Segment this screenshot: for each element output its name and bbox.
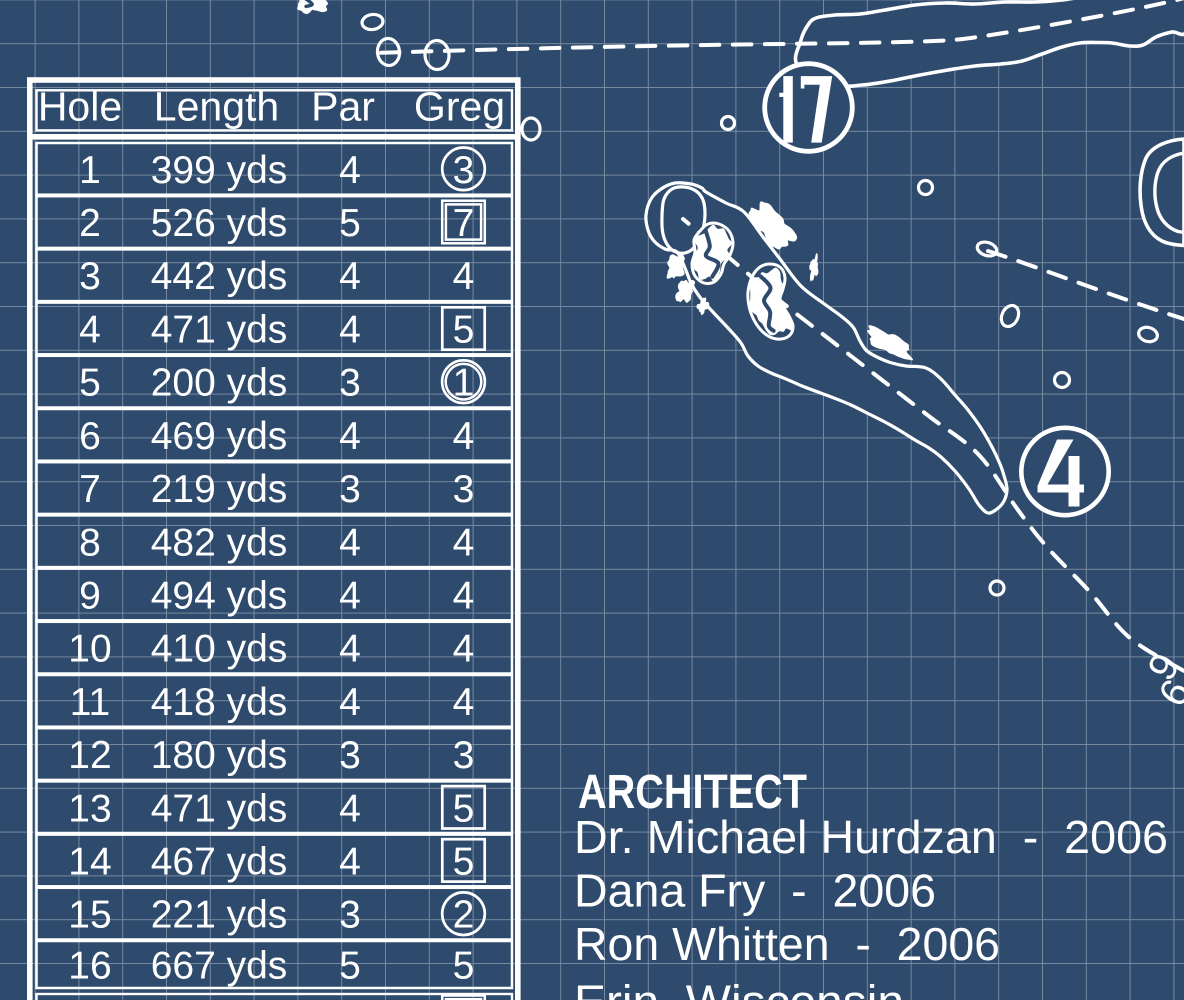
svg-text:5: 5: [453, 309, 475, 352]
svg-text:Dana Fry - 2006: Dana Fry - 2006: [574, 865, 936, 917]
svg-text:4: 4: [453, 255, 475, 298]
svg-text:3: 3: [79, 255, 101, 298]
svg-text:3: 3: [453, 149, 475, 192]
svg-text:3: 3: [339, 734, 361, 777]
svg-text:Greg: Greg: [414, 84, 505, 130]
svg-text:4: 4: [339, 787, 361, 830]
svg-text:410 yds: 410 yds: [151, 628, 288, 671]
svg-text:3: 3: [339, 362, 361, 405]
svg-text:467 yds: 467 yds: [151, 841, 288, 884]
svg-text:4: 4: [453, 628, 475, 671]
svg-text:1: 1: [79, 149, 101, 192]
svg-text:2: 2: [79, 202, 101, 245]
svg-text:2: 2: [453, 894, 475, 937]
svg-text:4: 4: [339, 681, 361, 724]
svg-text:4: 4: [339, 841, 361, 884]
svg-text:Hole: Hole: [38, 84, 122, 130]
svg-text:12: 12: [68, 734, 111, 777]
svg-text:15: 15: [68, 894, 111, 937]
svg-text:Dr. Michael Hurdzan - 2006: Dr. Michael Hurdzan - 2006: [574, 811, 1168, 863]
svg-text:4: 4: [453, 575, 475, 618]
svg-text:9: 9: [79, 575, 101, 618]
svg-text:8: 8: [79, 521, 101, 564]
svg-text:526 yds: 526 yds: [151, 202, 288, 245]
svg-text:3: 3: [453, 734, 475, 777]
svg-text:5: 5: [339, 945, 361, 988]
svg-text:4: 4: [339, 521, 361, 564]
svg-text:5: 5: [79, 362, 101, 405]
svg-text:5: 5: [453, 787, 475, 830]
svg-text:4: 4: [339, 255, 361, 298]
svg-text:4: 4: [453, 681, 475, 724]
svg-text:221 yds: 221 yds: [151, 894, 288, 937]
svg-text:10: 10: [68, 628, 111, 671]
svg-text:3: 3: [339, 468, 361, 511]
svg-text:5: 5: [453, 841, 475, 884]
svg-text:4: 4: [339, 575, 361, 618]
svg-text:4: 4: [339, 415, 361, 458]
svg-text:Erin, Wisconsin: Erin, Wisconsin: [574, 976, 904, 1000]
svg-text:4: 4: [339, 309, 361, 352]
svg-text:4: 4: [339, 628, 361, 671]
svg-text:13: 13: [68, 787, 111, 830]
svg-text:399 yds: 399 yds: [151, 149, 288, 192]
svg-text:3: 3: [453, 468, 475, 511]
svg-text:471 yds: 471 yds: [151, 309, 288, 352]
svg-text:3: 3: [339, 894, 361, 937]
svg-text:11: 11: [70, 681, 111, 724]
svg-text:200 yds: 200 yds: [151, 362, 288, 405]
svg-text:4: 4: [339, 149, 361, 192]
svg-text:469 yds: 469 yds: [151, 415, 288, 458]
svg-text:219 yds: 219 yds: [151, 468, 288, 511]
svg-text:4: 4: [453, 521, 475, 564]
svg-text:442 yds: 442 yds: [151, 255, 288, 298]
svg-text:494 yds: 494 yds: [151, 575, 288, 618]
svg-text:7: 7: [79, 468, 101, 511]
svg-text:Length: Length: [154, 84, 279, 130]
svg-text:Par: Par: [311, 84, 375, 130]
svg-text:180 yds: 180 yds: [151, 734, 288, 777]
svg-text:4: 4: [453, 415, 475, 458]
svg-text:5: 5: [339, 202, 361, 245]
svg-text:14: 14: [68, 841, 111, 884]
svg-text:Ron Whitten - 2006: Ron Whitten - 2006: [574, 918, 1000, 970]
svg-text:5: 5: [453, 945, 475, 988]
svg-text:482 yds: 482 yds: [151, 521, 288, 564]
svg-text:16: 16: [68, 945, 111, 988]
svg-text:418 yds: 418 yds: [151, 681, 288, 724]
svg-text:667 yds: 667 yds: [151, 945, 288, 988]
svg-text:471 yds: 471 yds: [151, 787, 288, 830]
svg-text:4: 4: [79, 309, 101, 352]
svg-text:6: 6: [79, 415, 101, 458]
